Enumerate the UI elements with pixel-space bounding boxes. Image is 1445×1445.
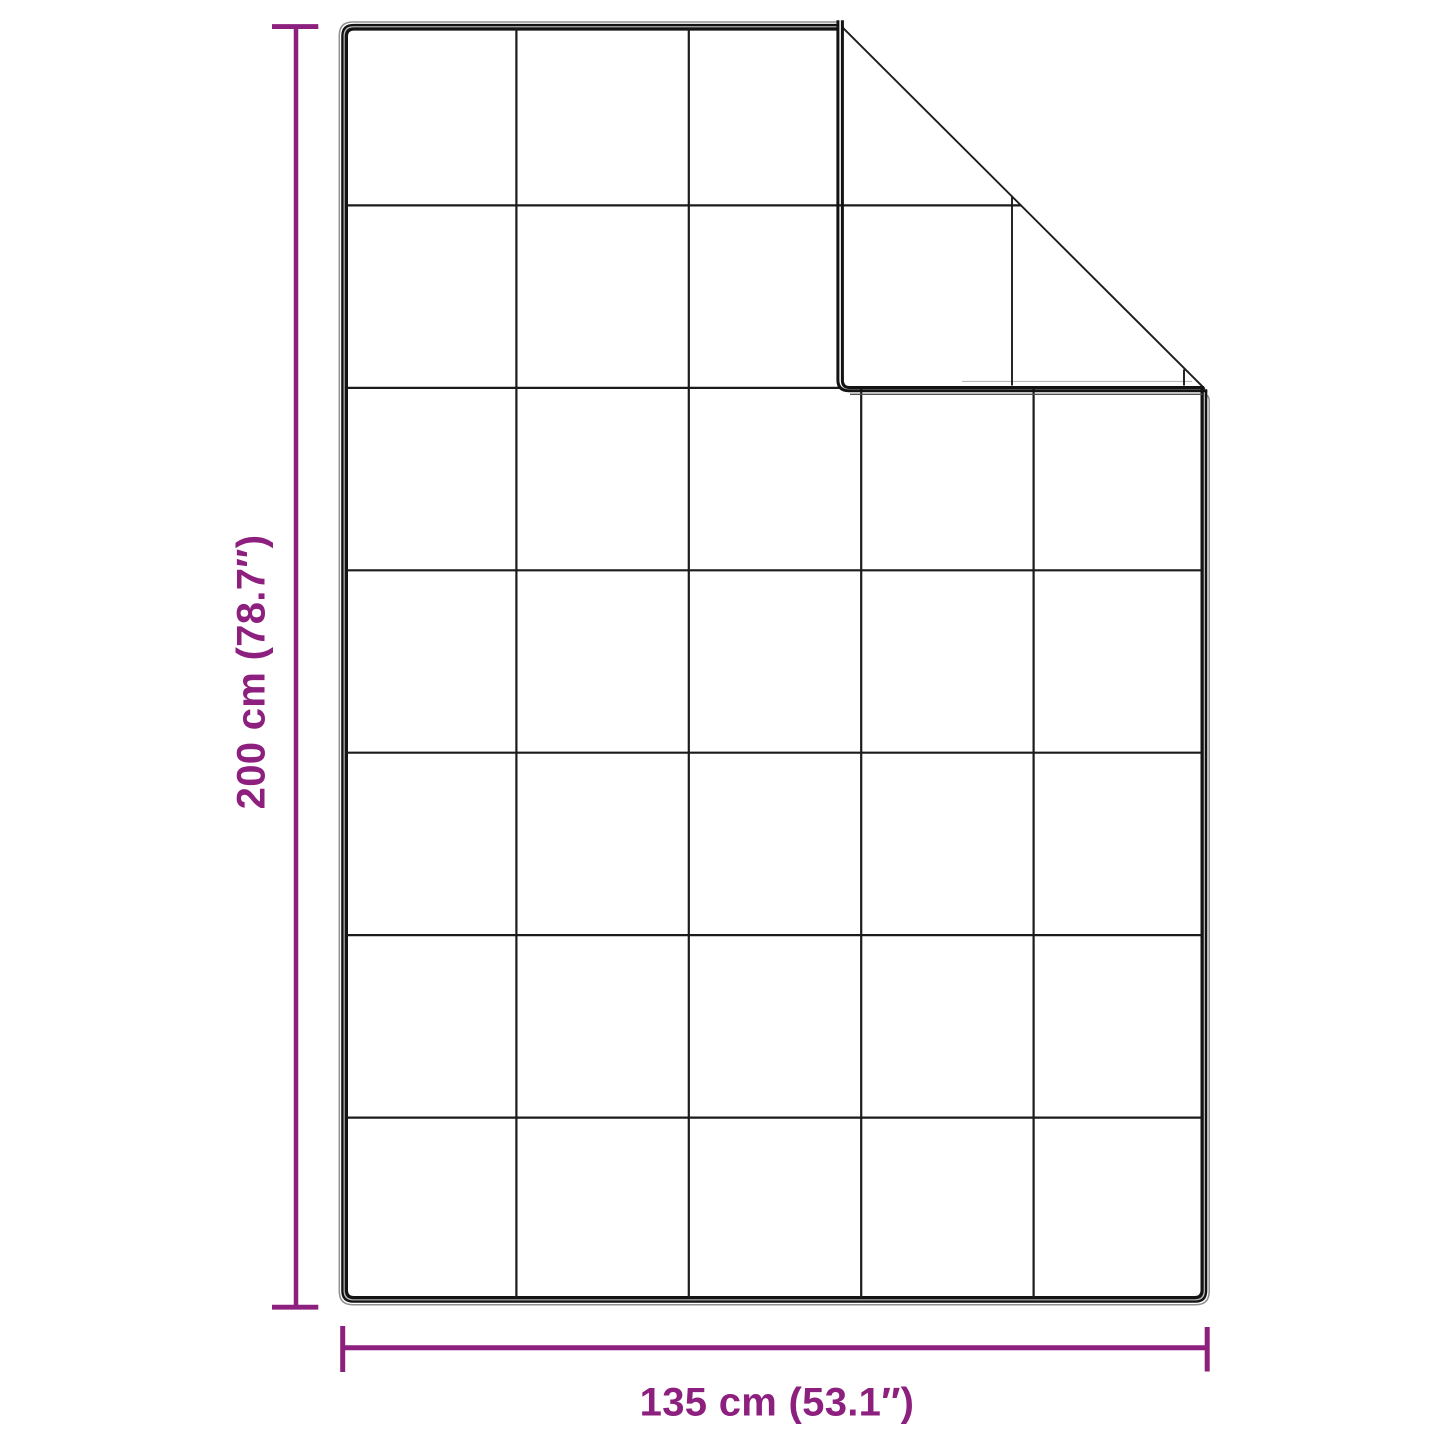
svg-text:135 cm (53.1″): 135 cm (53.1″) [640,1381,915,1425]
svg-text:200 cm (78.7″): 200 cm (78.7″) [230,535,274,810]
